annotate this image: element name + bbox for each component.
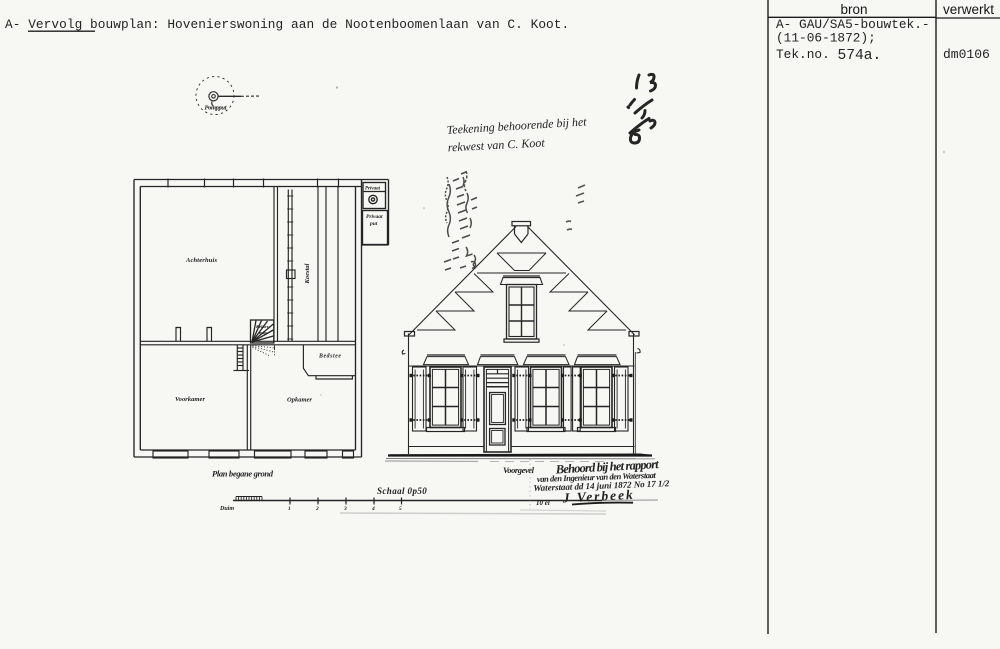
svg-text:Privaat: Privaat	[366, 214, 383, 220]
svg-text:trap: trap	[259, 330, 267, 335]
svg-text:2: 2	[315, 506, 319, 512]
svg-text:4: 4	[371, 506, 375, 512]
svg-text:put: put	[369, 221, 378, 227]
svg-text:Bedstee: Bedstee	[318, 354, 341, 360]
svg-text:Opkamer: Opkamer	[287, 397, 312, 404]
svg-text:dm0106: dm0106	[943, 47, 990, 62]
svg-text:Privaat: Privaat	[365, 187, 381, 192]
svg-text:10 el: 10 el	[536, 499, 550, 507]
svg-text:5: 5	[399, 506, 402, 512]
svg-text:Koestal: Koestal	[304, 263, 311, 284]
svg-text:3: 3	[343, 506, 347, 512]
svg-text:bron: bron	[840, 2, 867, 17]
svg-text:Pompput: Pompput	[205, 105, 227, 112]
svg-text:verwerkt: verwerkt	[943, 2, 994, 17]
svg-text:A- Vervolg bouwplan: Hoveniers: A- Vervolg bouwplan: Hovenierswoning aan…	[5, 17, 569, 32]
svg-text:Schaal 0p50: Schaal 0p50	[377, 486, 427, 496]
svg-text:Plan begane grond: Plan begane grond	[212, 469, 274, 479]
svg-text:1: 1	[288, 506, 291, 512]
svg-text:Duim: Duim	[219, 506, 234, 512]
svg-text:Voorkamer: Voorkamer	[175, 396, 205, 403]
svg-text:Tek.no. 574a.: Tek.no. 574a.	[776, 47, 881, 64]
svg-text:Achterhuis: Achterhuis	[185, 257, 217, 264]
svg-text:(11-06-1872);: (11-06-1872);	[776, 31, 876, 46]
svg-text:Kelder: Kelder	[255, 324, 269, 329]
